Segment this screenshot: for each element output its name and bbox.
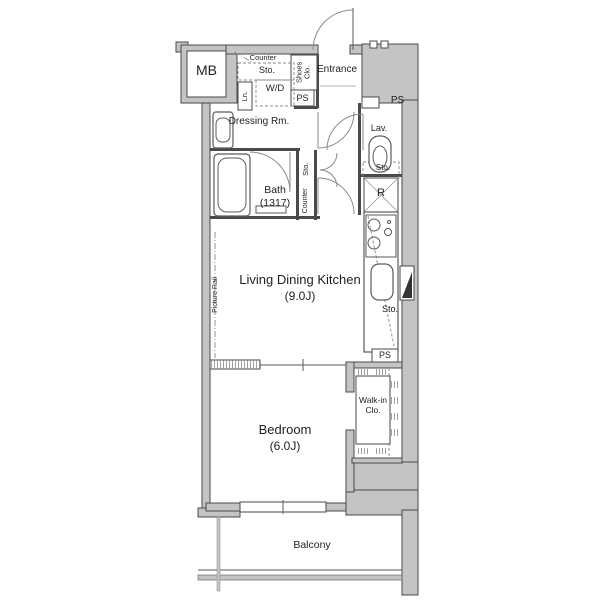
room-label-ldk: Living Dining Kitchen <box>220 273 380 288</box>
room-label-mb: MB <box>187 63 226 79</box>
label-refrigerator: R <box>371 187 391 199</box>
label-picture-rail: Picture Rail <box>212 273 220 317</box>
label-ldk-size: (9.0J) <box>220 290 380 303</box>
label-storage-top: Sto. <box>247 65 287 75</box>
balcony-railing <box>198 517 402 591</box>
room-label-entrance: Entrance <box>313 64 361 75</box>
floor-plan: MB Counter Sto. W/D Ln. Shoes Clo. PS En… <box>0 0 600 600</box>
label-bedroom-size: (6.0J) <box>215 440 355 453</box>
bedroom-window <box>240 500 326 514</box>
label-counter-hall: Counter <box>302 185 310 217</box>
room-label-bath: Bath <box>238 185 312 197</box>
label-bath-dimension: (1317) <box>238 198 312 210</box>
label-shoes-closet: Shoes Clo. <box>296 54 313 90</box>
label-storage-kitchen: Sto. <box>376 304 404 314</box>
label-pipe-space-kitchen: PS <box>372 350 398 360</box>
label-counter-top: Counter <box>241 54 285 62</box>
ldk-bedroom-partition <box>210 359 346 371</box>
room-label-walk-in-closet: Walk-in Clo. <box>354 396 392 415</box>
label-storage-hall: Sto. <box>302 157 310 181</box>
label-pipe-space-topright: PS <box>384 95 411 106</box>
label-linen: Ln. <box>241 84 249 108</box>
label-storage-lav: Sto. <box>368 164 398 173</box>
label-pipe-space-entry: PS <box>291 93 314 103</box>
room-label-balcony: Balcony <box>237 540 387 552</box>
label-washer-dryer: W/D <box>256 84 294 95</box>
kitchen-vent <box>400 266 414 300</box>
room-label-dressing: Dressing Rm. <box>222 116 296 127</box>
room-label-bedroom: Bedroom <box>215 423 355 438</box>
room-label-lavatory: Lav. <box>361 123 397 133</box>
